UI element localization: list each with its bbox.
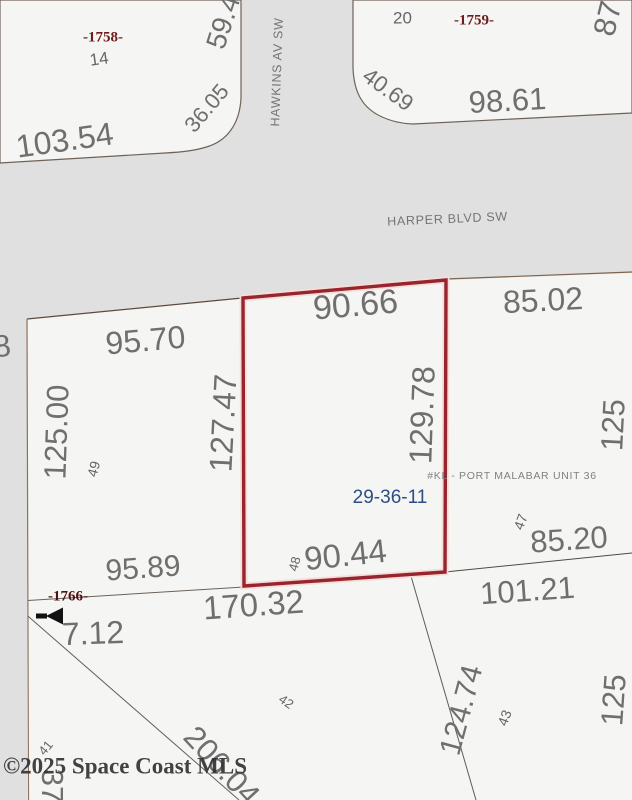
- svg-text:95.70: 95.70: [104, 319, 187, 362]
- svg-text:#KL - PORT MALABAR UNIT 36: #KL - PORT MALABAR UNIT 36: [427, 470, 597, 482]
- svg-text:90.66: 90.66: [311, 282, 399, 327]
- svg-text:-1758-: -1758-: [83, 30, 123, 46]
- svg-text:125: 125: [594, 673, 632, 727]
- svg-text:125: 125: [594, 398, 632, 451]
- svg-text:170.32: 170.32: [202, 583, 305, 627]
- svg-text:85.02: 85.02: [502, 280, 584, 320]
- svg-text:-1766-: -1766-: [48, 589, 88, 605]
- svg-text:29-36-11: 29-36-11: [353, 487, 428, 508]
- svg-text:7.12: 7.12: [61, 614, 124, 652]
- svg-text:127.47: 127.47: [202, 373, 243, 473]
- svg-text:85.20: 85.20: [529, 519, 609, 559]
- svg-text:101.21: 101.21: [479, 570, 576, 612]
- svg-text:14: 14: [88, 48, 109, 69]
- svg-text:-1759-: -1759-: [454, 13, 494, 29]
- svg-text:95.89: 95.89: [104, 549, 181, 587]
- svg-text:125.00: 125.00: [37, 384, 75, 480]
- svg-text:20: 20: [393, 9, 412, 28]
- svg-text:98.61: 98.61: [468, 81, 547, 120]
- svg-text:129.78: 129.78: [402, 365, 441, 464]
- svg-text:©2025 Space Coast MLS: ©2025 Space Coast MLS: [3, 754, 247, 779]
